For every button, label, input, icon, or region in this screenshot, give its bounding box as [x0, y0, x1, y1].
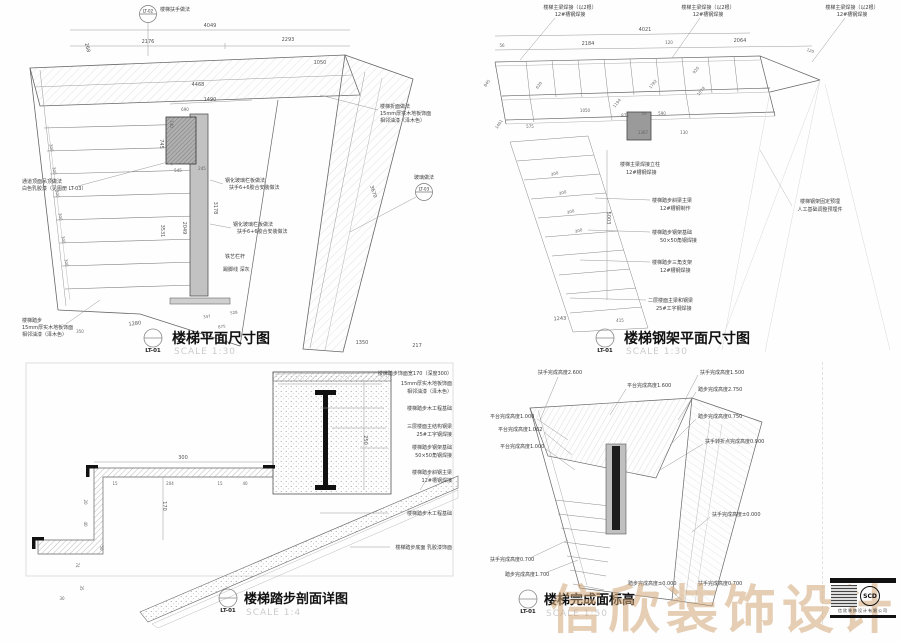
dim: 845	[483, 78, 492, 87]
note: 踢脚线 深灰	[223, 266, 250, 273]
note: 12#槽钢焊接	[693, 11, 724, 18]
note: 50×50角钢焊接	[415, 452, 452, 459]
dim: 74	[75, 562, 80, 568]
dim: 130	[680, 130, 688, 135]
plan-title-block: LT-01 楼梯平面尺寸图 SCALE 1:30	[144, 329, 270, 355]
note: 12#槽钢焊接	[660, 267, 691, 274]
plan-wall-foot	[170, 298, 230, 304]
note: 12#槽钢制作	[660, 205, 691, 212]
elev-label: 平台完成高度1.000	[500, 443, 544, 450]
elev-label: 平台完成高度1.600	[627, 382, 671, 389]
note: 15mm厚实木地板饰面	[380, 110, 431, 117]
dim: 56	[499, 43, 505, 48]
dim: 59	[641, 111, 647, 116]
dim: 1782	[648, 78, 659, 89]
note: 相邻油漆（泽木色）	[22, 331, 67, 338]
dim: 268	[83, 42, 91, 53]
note: 钢化玻璃栏板做法	[225, 177, 265, 184]
note: 铁艺栏杆	[225, 253, 245, 260]
note: 25#工字钢焊接	[416, 431, 452, 438]
elev-label: 扶手完成高度0.700	[490, 556, 534, 563]
steel-faint-diagonals	[718, 80, 890, 352]
note: 12#槽钢焊接	[555, 11, 586, 18]
note: 楼梯折面做法	[380, 103, 410, 110]
dim: 40	[242, 481, 248, 486]
elev-label: 踏步完成高度0.750	[698, 413, 742, 420]
dim: 875	[621, 113, 629, 118]
note: 楼梯踏步斜钢主梁	[412, 469, 452, 476]
note: 人工基础调整预埋件	[797, 206, 842, 213]
logo-brand: SCD	[863, 593, 877, 600]
note: 楼梯踏步钢架基础	[652, 229, 692, 236]
ref-label: LT-03	[419, 187, 430, 192]
note: 楼梯踏步斜梁主梁	[652, 197, 692, 204]
note: 扶手6+6胶合安装做法	[229, 184, 280, 191]
steel-top-notes: 楼梯主梁焊接（以2根） 12#槽钢焊接 楼梯主梁焊接（以2根） 12#槽钢焊接 …	[520, 4, 879, 62]
panel-scale: SCALE 1:4	[246, 608, 301, 618]
note: 楼梯踏步饰面宽170（深度300）	[378, 370, 452, 377]
dim: 170	[161, 501, 167, 511]
dim: 5003	[605, 212, 611, 225]
dim: 300	[574, 227, 583, 234]
steel-frame-drawing: 楼梯主梁焊接（以2根） 12#槽钢焊接 楼梯主梁焊接（以2根） 12#槽钢焊接 …	[460, 0, 900, 355]
dim: 1050	[314, 60, 327, 66]
dim: 300	[558, 189, 567, 196]
elev-label: 扶手完成高度1.500	[700, 369, 744, 376]
dim: 4468	[192, 82, 205, 88]
panel-scale: SCALE 1:30	[174, 347, 236, 355]
dim: 1490	[204, 97, 217, 103]
dim: 690	[181, 107, 189, 112]
dim: 415	[616, 318, 624, 323]
note: 楼梯踏步底面 乳胶漆饰面	[395, 544, 452, 551]
dim: 347	[203, 313, 212, 319]
note: 扶手6+6胶合安装做法	[237, 228, 288, 235]
dim: 4049	[204, 23, 217, 29]
note: 三层楼面主结构钢梁	[407, 423, 452, 430]
dim: 875	[218, 323, 227, 329]
note: 楼梯主梁焊接立柱	[620, 161, 660, 168]
dim: 2064	[734, 38, 747, 44]
note: 楼梯扶手做法	[160, 6, 190, 13]
dim: 1401	[494, 118, 504, 130]
steel-title-block: LT-01 楼梯钢架平面尺寸图 SCALE 1:30	[596, 329, 750, 355]
dim: 250	[362, 435, 368, 445]
dim: 1243	[553, 316, 566, 323]
dim: 2293	[282, 37, 295, 43]
dim: 204	[166, 481, 174, 486]
note: 12#槽钢焊接	[837, 11, 868, 18]
dim: 545	[174, 168, 182, 173]
elevation-wall-core	[612, 446, 620, 530]
drawing-sheet: { "watermark": "信欣装饰设计", "logo": { "bran…	[0, 0, 900, 632]
panel-scale: SCALE 1:30	[626, 347, 688, 355]
note: 白色乳胶漆（见图册 LT-03）	[22, 185, 86, 192]
dim: 15	[112, 481, 118, 486]
note: 楼梯踏步木工程基础	[407, 405, 452, 412]
elev-label: 平台完成高度1.000	[490, 413, 534, 420]
steel-side-notes: 楼梯主梁焊接立柱 12#槽钢焊接 楼梯踏步斜梁主梁 12#槽钢制作 楼梯踏步钢架…	[570, 150, 843, 312]
logo-block: SCD 信欣装饰设计有限公司	[830, 578, 896, 625]
logo-company: 信欣装饰设计有限公司	[830, 608, 896, 614]
dim: 575	[526, 124, 534, 129]
section-steel-angles	[32, 465, 275, 549]
dim: 745	[158, 139, 164, 149]
plan-outline	[30, 55, 413, 352]
note: 钢化玻璃栏板做法	[233, 221, 273, 228]
note: 二层楼面主梁和钢梁	[648, 297, 693, 304]
dim: 350	[76, 329, 84, 334]
dim: 120	[665, 40, 673, 45]
dim: 620	[535, 80, 544, 89]
note: 楼梯踏步三角支架	[652, 259, 692, 266]
note: 50×50角钢焊接	[660, 237, 697, 244]
note: 楼梯踏步钢架基础	[412, 444, 452, 451]
dim: 2184	[582, 41, 595, 47]
company-seal-icon	[831, 585, 857, 607]
note: 楼梯踏步木工程基础	[407, 510, 452, 517]
logo-brand-circle: SCD	[860, 586, 880, 606]
dim: 120	[806, 47, 815, 54]
dim: 40	[83, 521, 88, 527]
plan-ref-bubble-top: LT-02 楼梯扶手做法	[140, 6, 191, 23]
steel-column	[627, 112, 651, 140]
dim: 140	[169, 120, 174, 128]
elev-label: 扶手完成高度±0.000	[712, 511, 761, 518]
dim: 2176	[142, 39, 155, 45]
note: 楼梯主梁焊接（以2根）	[681, 4, 734, 11]
elev-label: 踏步完成高度1.700	[505, 571, 549, 578]
note: 25#工字钢焊接	[656, 305, 692, 312]
dim: 35	[79, 585, 84, 591]
panel-title: 楼梯踏步剖面详图	[244, 591, 348, 607]
elev-label: 平台完成高度1.002	[498, 426, 542, 433]
stair-plan-drawing: 4049 2176 2293 4468 1050 268 1490 690 14…	[20, 0, 460, 355]
drawing-ref: LT-01	[597, 348, 613, 354]
dim: 15	[217, 481, 223, 486]
dim: 300	[178, 455, 188, 461]
note: 15mm厚实木地板饰面	[22, 324, 73, 331]
dim: 300	[550, 170, 559, 177]
drawing-ref: LT-01	[220, 608, 236, 614]
dim: 217	[412, 343, 422, 349]
dim: 2049	[181, 222, 187, 235]
panel-title: 楼梯平面尺寸图	[172, 330, 270, 347]
dim: 1074	[696, 85, 707, 96]
dim: 528	[230, 309, 239, 315]
dim: 245	[198, 166, 206, 171]
dim: 50	[99, 545, 104, 551]
dim: 4021	[639, 27, 652, 33]
note: 15mm厚实木地板饰面	[401, 380, 452, 387]
panel-title: 楼梯钢架平面尺寸图	[624, 330, 750, 347]
elev-label: 踏步完成高度2.750	[698, 386, 742, 393]
ref-label: LT-02	[143, 9, 154, 14]
note: 相邻油漆（泽木色）	[380, 117, 425, 124]
note: 玻璃做法	[414, 174, 434, 181]
note: 楼梯钢架固定预埋	[800, 198, 840, 205]
section-step-band	[38, 468, 273, 554]
note: 楼梯主梁焊接（以2根）	[825, 4, 878, 11]
dim: 920	[691, 65, 700, 74]
logo-bottom-bar	[830, 615, 896, 618]
dim: 300	[566, 208, 575, 215]
dim: 3531	[159, 225, 165, 238]
elev-label: 扶手完成高度2.600	[538, 369, 582, 376]
note: 楼梯主梁焊接（以2根）	[543, 4, 596, 11]
note: 楼梯踏步	[22, 317, 42, 324]
dim: 30	[59, 596, 65, 601]
step-section-drawing: 300 170 15 204 15 40 20 40 50 74 35 30 2…	[20, 360, 460, 632]
dim: 1194	[612, 97, 623, 108]
drawing-ref: LT-01	[520, 609, 536, 615]
elev-label: 扶手转折点完成高度0.900	[705, 438, 764, 445]
note: 相邻油漆（泽木色）	[407, 388, 452, 395]
note: 通道顶面吊顶做法	[22, 178, 62, 185]
dim: 1367	[638, 130, 649, 135]
dim: 1050	[580, 108, 591, 113]
dim: 590	[658, 111, 666, 116]
drawing-ref: LT-01	[145, 348, 161, 354]
dim: 20	[83, 499, 88, 505]
dim: 1280	[128, 320, 141, 327]
dim: 1350	[356, 340, 369, 346]
note: 12#槽钢焊接	[626, 169, 657, 176]
dim: 3178	[212, 202, 218, 215]
